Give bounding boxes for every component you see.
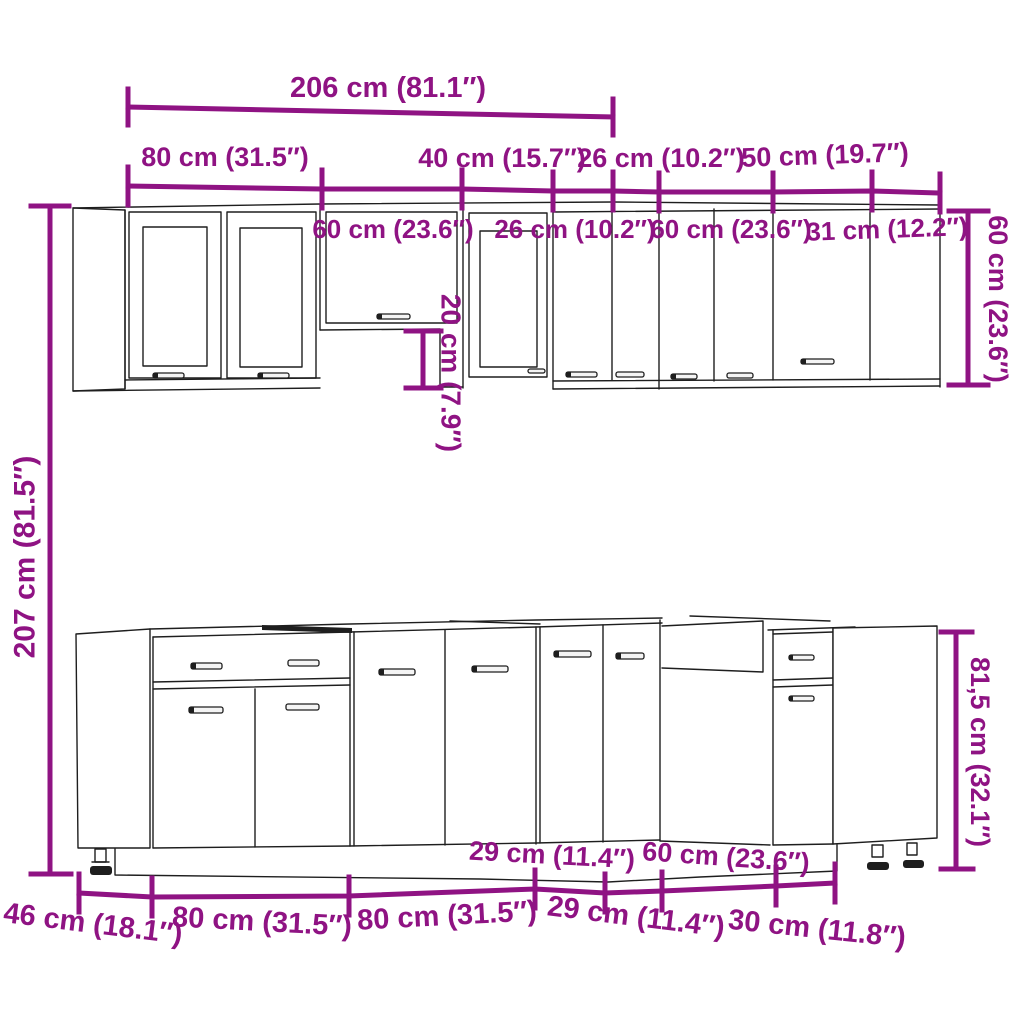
dim-label-wall-31: 31 cm (12.2″): [806, 211, 968, 247]
dim-label-wall-40: 40 cm (15.7″): [418, 143, 586, 173]
door-handle-cap: [153, 373, 158, 378]
countertop-top-edge: [150, 618, 662, 629]
base-a-bottom: [153, 846, 350, 848]
dim-total-height: 207 cm (81.5″): [9, 206, 72, 874]
wall-right-door-bottom: [553, 379, 940, 381]
dim-label-hood-gap: 20 cm (7.9″): [436, 294, 467, 452]
drawer-handle-cap: [789, 655, 793, 660]
base-a-drawer-bottom: [153, 678, 350, 682]
door-handle-cap: [554, 651, 559, 657]
dim-base-height: 81,5 cm (32.1″): [941, 632, 995, 869]
leg-foot: [903, 860, 924, 868]
drawer-handle: [288, 660, 319, 666]
dim-label-base-depth: 46 cm (18.1″): [2, 897, 184, 951]
dim-label-base-29-right: 29 cm (11.4″): [546, 890, 727, 943]
dim-label-wall-26-right: 26 cm (10.2″): [577, 143, 745, 173]
door-handle: [286, 704, 319, 710]
base-e-bottom: [773, 844, 833, 845]
wall-top-edge: [73, 202, 940, 208]
leg-stem: [907, 843, 917, 855]
leg-stem: [95, 849, 106, 862]
base-left-side-panel: [76, 629, 150, 848]
dim-label-wall-height: 60 cm (23.6″): [983, 215, 1013, 383]
base-a-door-top: [153, 685, 350, 689]
wall-cabinet-left-side-panel: [73, 208, 125, 391]
dim-label-total-width: 206 cm (81.1″): [290, 72, 486, 104]
countertop-front-edge: [153, 623, 662, 637]
dim-label-wall-80: 80 cm (31.5″): [141, 142, 309, 172]
base-e-counter-underside: [773, 632, 833, 634]
base-e-drawer-bottom: [773, 678, 833, 680]
cabinet-leg: [90, 849, 112, 875]
dim-base-widths: 29 cm (11.4″) 60 cm (23.6″) 46 cm (18.1″…: [2, 836, 908, 955]
door-handle: [189, 707, 223, 713]
door-handle-cap: [671, 374, 676, 379]
door-handle-cap: [189, 707, 194, 713]
door-handle: [616, 372, 644, 377]
leg-foot: [867, 862, 889, 870]
door-handle-cap: [801, 359, 806, 364]
door-handle-cap: [258, 373, 263, 378]
cabinet-leg: [867, 845, 889, 870]
door-handle: [379, 669, 415, 675]
dim-hood-gap: 20 cm (7.9″): [406, 294, 467, 452]
base-right-side-panel: [833, 626, 937, 844]
corner-counter-back-edge: [690, 616, 830, 621]
dim-label-wall-50: 50 cm (19.7″): [741, 137, 909, 173]
dim-label-wall-26-left: 26 cm (10.2″): [494, 214, 655, 244]
dim-label-wall-60-right: 60 cm (23.6″): [650, 214, 811, 244]
drawer-handle-cap: [191, 663, 196, 669]
cabinet-leg: [903, 843, 924, 868]
dim-label-base-80-b: 80 cm (31.5″): [356, 895, 537, 936]
hob-on-counter: [262, 625, 352, 633]
door-handle-cap: [616, 653, 621, 659]
leg-stem: [872, 845, 883, 857]
dim-wall-widths: 80 cm (31.5″) 40 cm (15.7″) 26 cm (10.2″…: [128, 137, 968, 247]
leg-foot: [90, 866, 112, 875]
door-handle-cap: [789, 696, 793, 701]
dim-total-width: 206 cm (81.1″): [128, 72, 613, 135]
corner-cabinet-front-band: [662, 621, 763, 672]
wall-glass-door-1-pane: [143, 227, 207, 366]
dim-label-total-height: 207 cm (81.5″): [9, 456, 42, 659]
dim-label-wall-60-left: 60 cm (23.6″): [312, 214, 473, 244]
door-handle: [727, 373, 753, 378]
wall-glass-door-3-pane: [480, 231, 537, 367]
dim-label-base-60: 60 cm (23.6″): [641, 836, 810, 878]
base-e-door-top: [773, 685, 833, 687]
wall-glass-door-2-pane: [240, 228, 302, 367]
dim-label-base-height: 81,5 cm (32.1″): [965, 657, 995, 847]
cabinet-line-art: [73, 202, 940, 882]
kitchen-dimension-diagram: 206 cm (81.1″) 80 cm (31.5″) 40 cm (15.7…: [0, 0, 1024, 1024]
door-handle: [472, 666, 508, 672]
dim-label-base-80-a: 80 cm (31.5″): [171, 901, 352, 942]
door-handle-cap: [379, 669, 384, 675]
door-handle-cap: [472, 666, 477, 672]
door-handle: [528, 369, 545, 373]
dim-label-base-30: 30 cm (11.8″): [727, 904, 908, 954]
door-handle-cap: [566, 372, 571, 377]
door-handle: [554, 651, 591, 657]
door-handle-cap: [377, 314, 382, 319]
wall-right-carcass-bottom: [553, 386, 940, 389]
